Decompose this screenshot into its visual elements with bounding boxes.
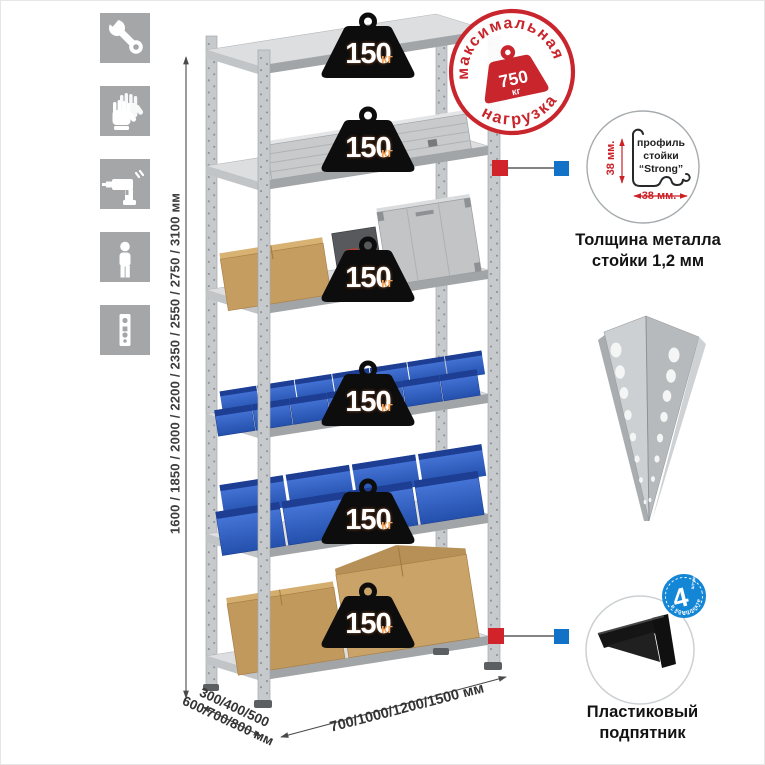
profile-label: профиль стойки “Strong” (632, 137, 690, 175)
load-weight-badge: 150 кг (318, 236, 418, 306)
feature-tile-drill (100, 159, 150, 209)
profile-label-line3: “Strong” (632, 163, 690, 176)
callout-blue-marker-top (554, 161, 569, 176)
load-unit: кг (381, 399, 393, 414)
callout-red-marker-top (492, 160, 508, 176)
callout-profile (492, 160, 569, 176)
load-weight-badge: 150 кг (318, 478, 418, 548)
profile-caption: Толщина металла стойки 1,2 мм (558, 230, 738, 273)
wrench-icon (100, 13, 150, 63)
plastic-foot-front-right (484, 662, 502, 670)
foot-caption-line2: подпятник (560, 723, 725, 744)
callout-foot (488, 628, 569, 644)
profile-caption-line2: стойки 1,2 мм (558, 251, 738, 272)
upright-strip-icon (100, 305, 150, 355)
height-dimension-label: 1600 / 1850 / 2000 / 2200 / 2350 / 2550 … (168, 84, 183, 644)
person-icon (100, 232, 150, 282)
load-weight-badge: 150 кг (318, 12, 418, 82)
feature-tile-upright (100, 305, 150, 355)
plastic-foot-front-left (254, 700, 272, 708)
load-unit: кг (381, 621, 393, 636)
feature-tile-person (100, 232, 150, 282)
callout-red-marker-bottom (488, 628, 504, 644)
gloves-icon (100, 86, 150, 136)
feature-tile-tools (100, 13, 150, 63)
plastic-foot-back-right (433, 648, 449, 655)
profile-label-line2: стойки (632, 150, 690, 163)
profile-dim-vertical: 38 мм. (605, 135, 617, 181)
drill-icon (100, 159, 150, 209)
load-unit: кг (381, 275, 393, 290)
foot-caption-line1: Пластиковый (560, 702, 725, 723)
load-weight-badge: 150 кг (318, 360, 418, 430)
foot-caption: Пластиковый подпятник (560, 702, 725, 745)
load-weight-badge: 150 кг (318, 106, 418, 176)
feature-tile-gloves (100, 86, 150, 136)
angle-upright-image (598, 316, 706, 521)
profile-caption-line1: Толщина металла (558, 230, 738, 251)
load-unit: кг (381, 517, 393, 532)
profile-label-line1: профиль (632, 137, 690, 150)
load-unit: кг (381, 51, 393, 66)
load-unit: кг (381, 145, 393, 160)
load-weight-badge: 150 кг (318, 582, 418, 652)
max-load-stamp: максимальная нагрузка 750 кг (434, 0, 591, 150)
product-infographic: 4 штуки в комплекте (0, 0, 765, 765)
callout-blue-marker-bottom (554, 629, 569, 644)
profile-dim-horizontal: 38 мм. (630, 190, 688, 202)
